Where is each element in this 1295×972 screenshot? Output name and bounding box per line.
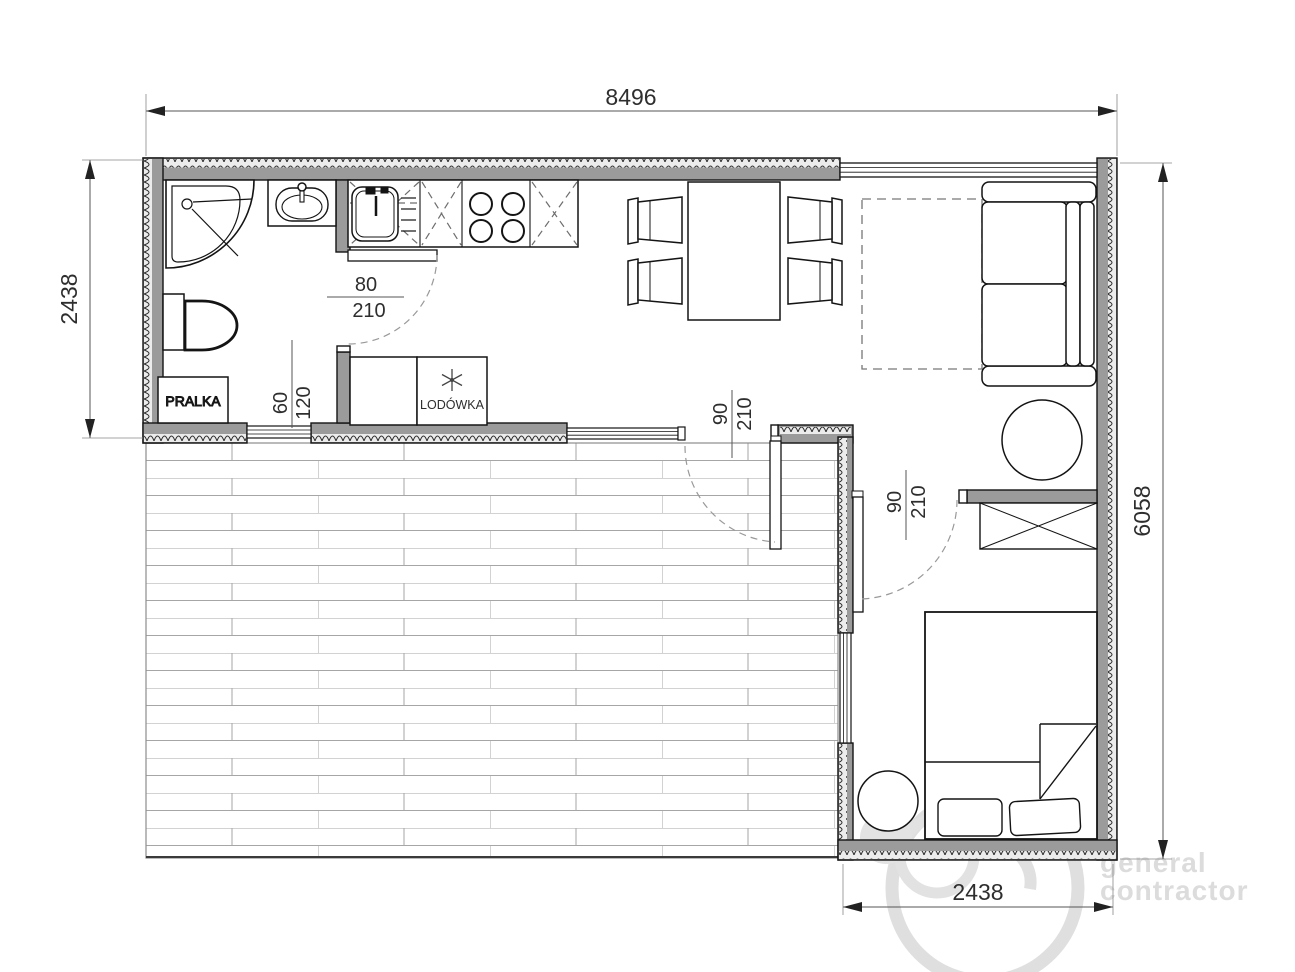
- window-width: 60: [270, 392, 292, 414]
- door-height: 210: [908, 485, 930, 518]
- sofa: [982, 182, 1096, 386]
- dining-chair: [788, 197, 842, 244]
- dining-chair: [628, 258, 682, 305]
- window-bedroom: [840, 633, 851, 743]
- dining-chair: [788, 258, 842, 305]
- window-top: [840, 163, 1097, 177]
- window-height: 120: [293, 386, 315, 419]
- fridge-unit: LODÓWKA: [350, 357, 487, 425]
- pillow: [1009, 798, 1081, 836]
- dimension-value: 2438: [952, 879, 1003, 905]
- bedside-table: [858, 771, 918, 831]
- dining-table: [688, 182, 780, 320]
- door-height: 210: [734, 397, 756, 430]
- window-bathroom: [247, 426, 311, 438]
- floor-plan-page: general contractor: [0, 0, 1295, 972]
- watermark-text-2: contractor: [1100, 875, 1248, 906]
- faucet-icon: [366, 188, 375, 194]
- door-height: 210: [352, 300, 385, 322]
- dimension-value: 8496: [605, 84, 656, 110]
- fridge-label: LODÓWKA: [420, 397, 485, 412]
- shower-drain-icon: [182, 199, 192, 209]
- bed: [925, 612, 1097, 839]
- cabinet-box: [350, 357, 417, 425]
- wall-stub-fridge: [337, 352, 350, 423]
- floor-plan-svg: general contractor: [0, 0, 1295, 972]
- coffee-table: [1002, 400, 1082, 480]
- door-width: 90: [710, 403, 732, 425]
- wall-cap: [959, 490, 967, 503]
- washing-machine-label: PRALKA: [165, 393, 221, 409]
- dimension-value: 2438: [56, 273, 82, 324]
- dimension-value: 6058: [1129, 485, 1155, 536]
- pillow: [938, 799, 1002, 836]
- faucet-icon: [298, 183, 306, 191]
- washing-machine: PRALKA: [158, 377, 228, 423]
- wall-bedroom-partition: [967, 490, 1097, 503]
- door-width: 90: [884, 491, 906, 513]
- bathroom-sink: [268, 180, 336, 226]
- terrace-deck: [146, 443, 838, 858]
- wardrobe: [980, 503, 1097, 549]
- wall-cap: [337, 346, 350, 352]
- door-width: 80: [355, 274, 377, 296]
- dining-chair: [628, 197, 682, 244]
- window-kitchen-glazing: [567, 427, 685, 440]
